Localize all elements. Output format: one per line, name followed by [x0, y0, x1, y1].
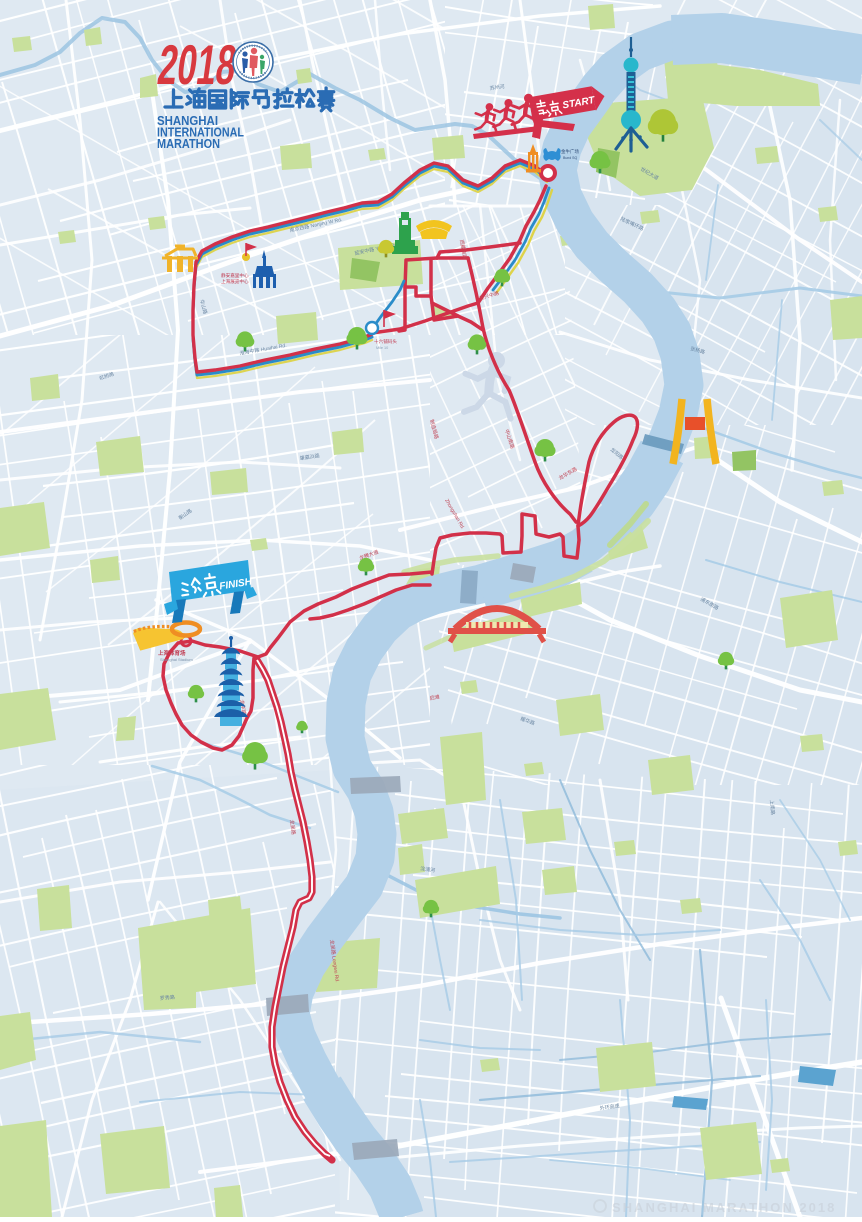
svg-text:MARATHON: MARATHON [157, 137, 220, 151]
svg-text:Shanghai Stadium: Shanghai Stadium [160, 657, 193, 662]
svg-text:十六铺码头: 十六铺码头 [374, 338, 397, 345]
svg-text:静安嘉里中心: 静安嘉里中心 [221, 272, 249, 279]
svg-text:上海展览中心: 上海展览中心 [221, 278, 249, 285]
svg-text:SHANGHAI MARATHON 2018: SHANGHAI MARATHON 2018 [612, 1200, 836, 1215]
svg-text:上南路: 上南路 [768, 800, 776, 816]
svg-text:Bund SQ: Bund SQ [563, 156, 577, 160]
svg-text:2018: 2018 [154, 34, 240, 96]
svg-text:罗秀路: 罗秀路 [160, 994, 176, 1002]
svg-text:金牛广场: 金牛广场 [561, 148, 579, 155]
svg-text:上海体育场: 上海体育场 [158, 649, 186, 657]
svg-text:Mile 10: Mile 10 [376, 346, 388, 350]
